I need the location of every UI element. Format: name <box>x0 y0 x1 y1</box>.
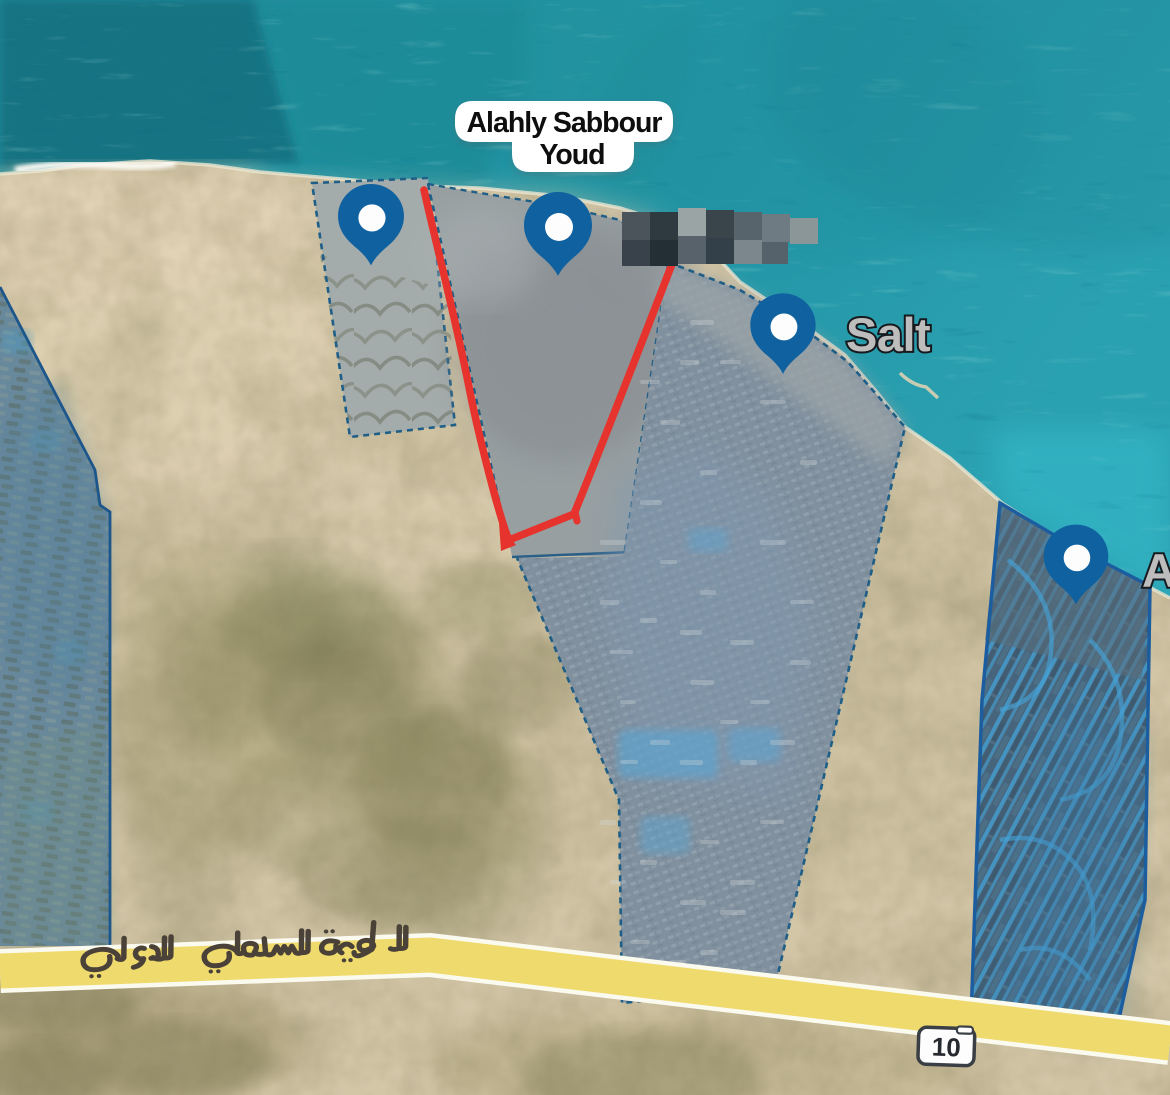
svg-text:10: 10 <box>931 1031 961 1062</box>
svg-text:Alahly Sabbour: Alahly Sabbour <box>466 107 662 139</box>
svg-text:Salt: Salt <box>846 308 931 361</box>
svg-text:A: A <box>1142 544 1170 597</box>
svg-text:Youd: Youd <box>539 139 604 171</box>
